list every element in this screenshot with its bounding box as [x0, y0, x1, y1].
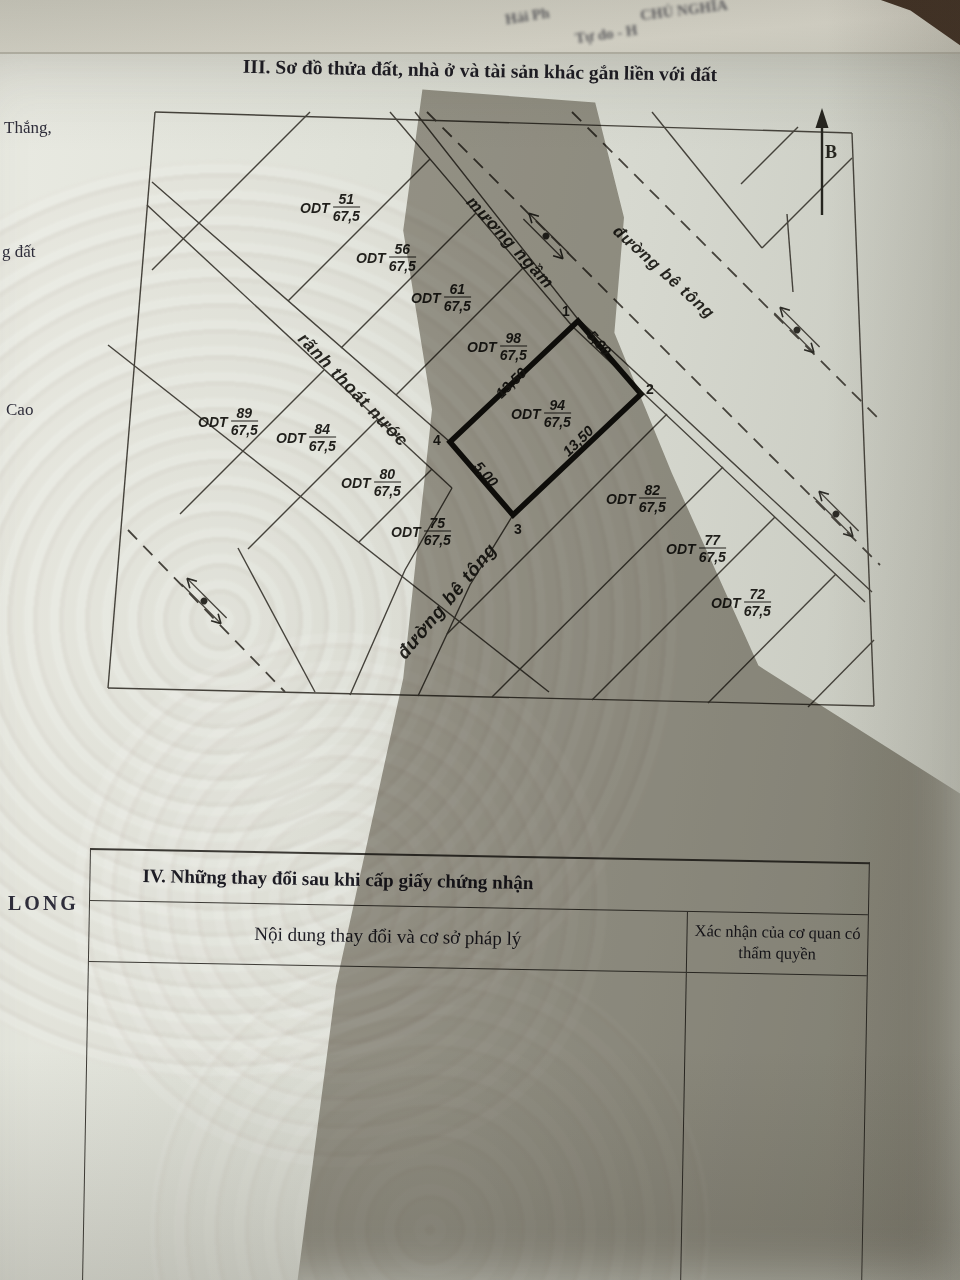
cadastral-map: [0, 0, 960, 780]
road-marker-icon: [178, 575, 230, 627]
section4-table: IV. Những thay đổi sau khi cấp giấy chứn…: [82, 848, 870, 1280]
parcel-label-82: ODT8267,5: [606, 483, 666, 514]
right-band-parcel-lines: [447, 414, 874, 707]
drainage-ditch-lines: [147, 182, 513, 515]
table-body-row: [83, 962, 867, 1280]
parcel-corner-2: 2: [646, 381, 654, 397]
parcel-label-56: ODT5667,5: [356, 242, 416, 273]
column-header-content: Nội dung thay đổi và cơ sở pháp lý: [89, 901, 687, 972]
parcel-corner-1: 1: [562, 303, 570, 319]
road-marker-icon: [771, 304, 823, 356]
left-band-parcel-lines: [108, 345, 549, 692]
parcel-label-80: ODT8067,5: [341, 467, 401, 498]
photographed-certificate-page: Hải Ph CHỦ NGHĨA Tự do - H Thắng, g đất …: [0, 0, 960, 1280]
table-cell-confirmation: [680, 973, 867, 1280]
north-label: B: [825, 142, 837, 163]
parcel-label-75: ODT7567,5: [391, 516, 451, 547]
parcel-label-51: ODT5167,5: [300, 192, 360, 223]
table-cell-content: [83, 962, 686, 1280]
parcel-label-84: ODT8467,5: [276, 422, 336, 453]
muong-ngam-channel-lines: [390, 112, 872, 602]
parcel-corner-3: 3: [514, 521, 522, 537]
road-marker-icon: [810, 488, 862, 540]
parcel-label-94: ODT9467,5: [511, 398, 571, 429]
parcel-label-72: ODT7267,5: [711, 587, 771, 618]
parcel-label-98: ODT9867,5: [467, 331, 527, 362]
parcel-corner-4: 4: [433, 432, 441, 448]
edge-text-fragment: LONG: [8, 892, 79, 915]
parcel-label-77: ODT7767,5: [666, 533, 726, 564]
parcel-label-61: ODT6167,5: [411, 282, 471, 313]
column-header-confirmation: Xác nhận của cơ quan có thẩm quyền: [686, 912, 868, 975]
parcel-label-89: ODT8967,5: [198, 406, 258, 437]
